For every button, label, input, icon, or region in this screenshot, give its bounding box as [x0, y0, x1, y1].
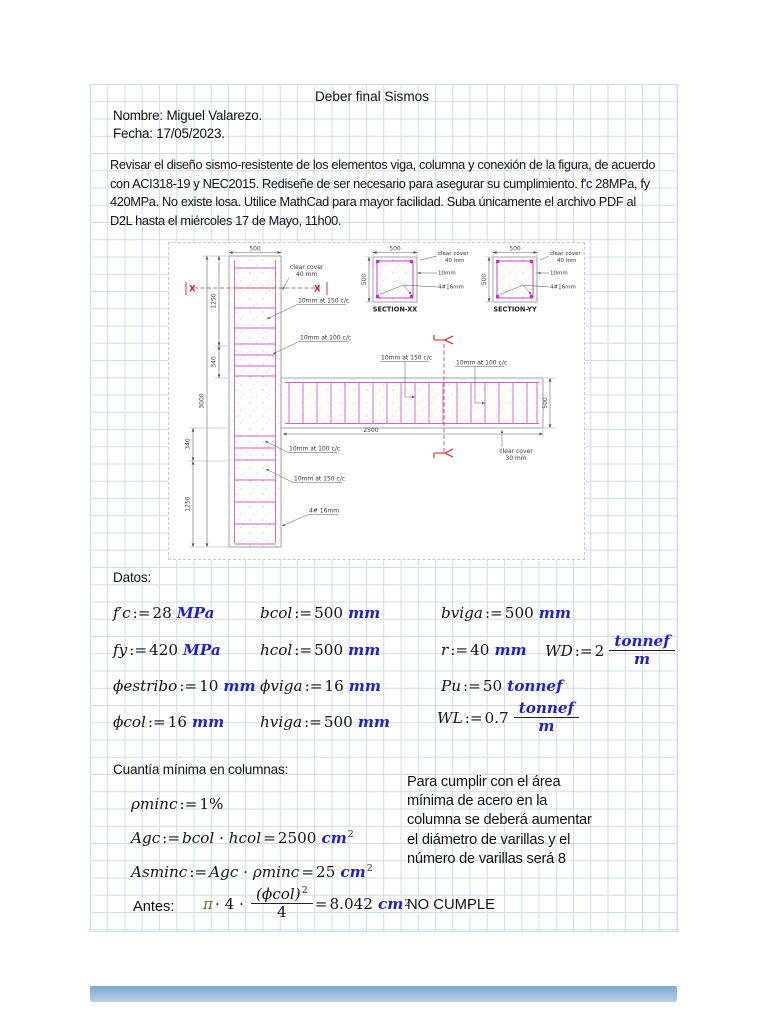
math-wd: WD:=2 tonnefm: [545, 633, 675, 668]
assignment-line: D2L hasta el miércoles 17 de Mayo, 11h00…: [110, 212, 700, 231]
label-col-stirrups-100: 10mm at 100 c/c: [300, 335, 351, 342]
label-clear-cover-30: clear cover: [499, 448, 533, 455]
math-agc: Agc:=bcol · hcol=2500cm2: [131, 829, 354, 847]
dim-column-width: 500: [249, 246, 261, 253]
note-line: Para cumplir con el área: [407, 773, 592, 792]
label-clear-cover-40-value: 40 mm: [296, 271, 317, 278]
column-member: [229, 256, 281, 547]
section-yy-cover-value: 40 mm: [557, 258, 576, 264]
section-xx-bars-label: 4#16mm: [438, 285, 464, 291]
label-col-stirrups-150: 10mm at 150 c/c: [298, 298, 349, 305]
structural-drawing-figure: X X 500 1250 340 3000 340 1250 2500 500: [168, 242, 585, 560]
section-xx-cover-value: 40 mm: [445, 258, 464, 264]
section-yy-title: SECTION-YY: [493, 306, 537, 314]
assignment-line: 420MPa. No existe losa. Utilice MathCad …: [110, 193, 700, 212]
math-bcol: bcol:=500mm: [260, 604, 380, 622]
pi-symbol: π: [203, 895, 213, 913]
label-longitudinal-bars: 4# 16mm: [309, 508, 339, 515]
math-fc: f′c:=28MPa: [113, 604, 214, 622]
section-xx-dim-width: 500: [389, 246, 401, 253]
section-xx-cover-label: clear cover: [438, 251, 469, 257]
math-bviga: bviga:=500mm: [441, 604, 571, 622]
section-x-mark-left: X: [189, 285, 196, 295]
math-fcol: ϕcol:=16mm: [113, 713, 224, 731]
section-x-mark-right: X: [314, 285, 321, 295]
next-page-top-edge: [90, 986, 677, 1002]
student-name: Nombre: Miguel Valarezo.: [113, 108, 262, 123]
dim-lower-zone: 340: [185, 438, 192, 450]
conclusion-note: Para cumplir con el área mínima de acero…: [407, 773, 592, 869]
section-xx-title: SECTION-XX: [373, 306, 418, 314]
math-fy: fy:=420MPa: [113, 641, 221, 659]
note-line: mínima de acero en la: [407, 792, 592, 811]
math-r: r:=40mm: [441, 641, 527, 659]
math-hcol: hcol:=500mm: [260, 641, 380, 659]
math-hviga: hviga:=500mm: [260, 713, 390, 731]
dim-upper-zone: 340: [211, 356, 218, 368]
beam-member: [281, 378, 543, 428]
math-wl: WL:=0.7 tonnefm: [437, 700, 579, 735]
dim-lower-height: 1250: [185, 496, 192, 511]
math-festribo: ϕestribo:=10mm: [113, 677, 256, 695]
dim-beam-length: 2500: [363, 427, 378, 434]
page-title: Deber final Sismos: [78, 89, 666, 104]
section-xx: 500 500 clear cover 40 mm 10mm 4#16mm SE…: [361, 246, 469, 314]
section-yy-dim-width: 500: [509, 246, 521, 253]
assignment-line: con ACI318-19 y NEC2015. Rediseñe de ser…: [110, 175, 700, 194]
assignment-line: Revisar el diseño sismo-resistente de lo…: [110, 156, 700, 175]
note-line: columna se deberá aumentar: [407, 811, 592, 830]
fraction: (ϕcol)2 4: [251, 886, 313, 921]
section-yy-tie-label: 10mm: [550, 271, 568, 277]
section-xx-dim-height: 500: [361, 274, 368, 286]
section-xx-tie-label: 10mm: [438, 271, 456, 277]
dim-total-height: 3000: [199, 393, 206, 408]
assignment-paragraph: Revisar el diseño sismo-resistente de lo…: [110, 156, 700, 230]
datos-heading: Datos:: [113, 570, 151, 585]
label-lower-stirrups-150: 10mm at 150 c/c: [294, 476, 345, 483]
date-line: Fecha: 17/05/2023.: [113, 126, 225, 141]
label-clear-cover-40: clear cover: [290, 264, 324, 271]
note-line: número de varillas será 8: [407, 850, 592, 869]
math-asminc: Asminc:=Agc · ρminc=25cm2: [131, 863, 373, 881]
math-fviga: ϕviga:=16mm: [260, 677, 381, 695]
section-yy-dim-height: 500: [481, 274, 488, 286]
dim-beam-depth: 500: [542, 397, 549, 409]
math-rominc: ρminc:=1%: [131, 795, 223, 813]
cuantia-heading: Cuantía mínima en columnas:: [113, 762, 288, 777]
section-yy: 500 500 clear cover 40 mm 10mm 4#16mm SE…: [481, 246, 581, 314]
antes-label: Antes:: [133, 899, 174, 915]
section-yy-bars-label: 4#16mm: [550, 285, 576, 291]
label-beam-stirrups-150: 10mm at 150 c/c: [381, 355, 432, 362]
label-lower-stirrups-100: 10mm at 100 c/c: [289, 446, 340, 453]
fraction: tonnefm: [609, 633, 674, 668]
math-antes-formula: π · 4 · (ϕcol)2 4 = 8.042 cm2: [203, 886, 410, 921]
fraction: tonnefm: [514, 700, 579, 735]
note-line: el diámetro de varillas y el: [407, 831, 592, 850]
label-clear-cover-30-value: 30 mm: [505, 455, 526, 462]
section-yy-cover-label: clear cover: [550, 251, 581, 257]
dim-upper-height: 1250: [211, 293, 218, 308]
label-beam-stirrups-100: 10mm at 100 c/c: [456, 360, 507, 367]
compliance-result: NO CUMPLE: [407, 897, 495, 913]
beam-column-drawing: X X 500 1250 340 3000 340 1250 2500 500: [169, 243, 584, 559]
math-pu: Pu:=50tonnef: [441, 677, 563, 695]
